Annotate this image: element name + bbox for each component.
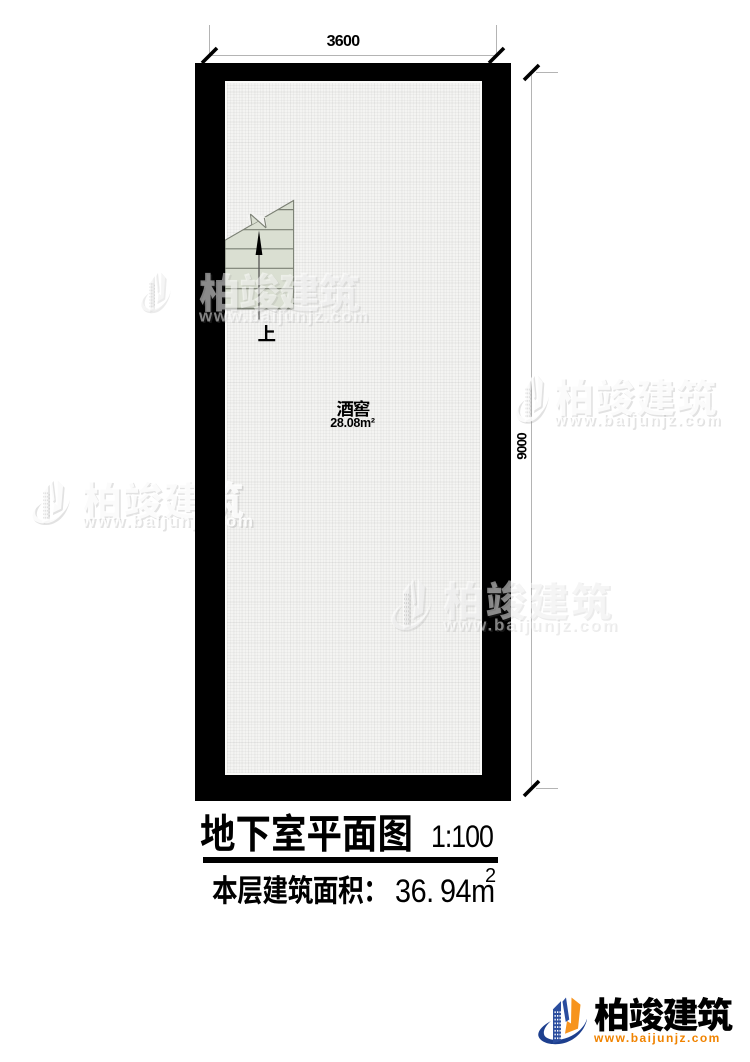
svg-text:www.baijunjz.com: www.baijunjz.com (198, 307, 370, 326)
svg-text:www.baijunjz.com: www.baijunjz.com (553, 412, 722, 429)
svg-text:www.baijunjz.com: www.baijunjz.com (442, 616, 619, 635)
